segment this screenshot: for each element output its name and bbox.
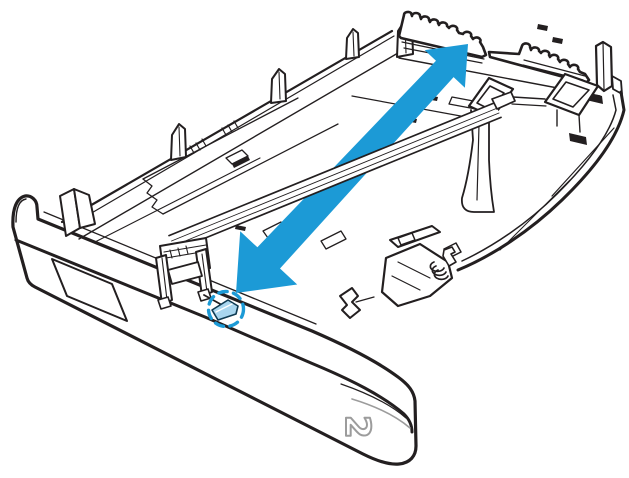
tray-number-label: 2 (337, 415, 377, 439)
roller-mechanism (340, 226, 456, 318)
front-panel: 2 (13, 196, 416, 464)
figure-canvas: 2 (0, 0, 629, 478)
length-rail (169, 92, 515, 250)
width-guide-right (512, 74, 598, 132)
paper-tray-illustration: 2 (0, 0, 629, 478)
tray-line-art: 2 (13, 12, 624, 464)
release-hook (340, 288, 360, 318)
